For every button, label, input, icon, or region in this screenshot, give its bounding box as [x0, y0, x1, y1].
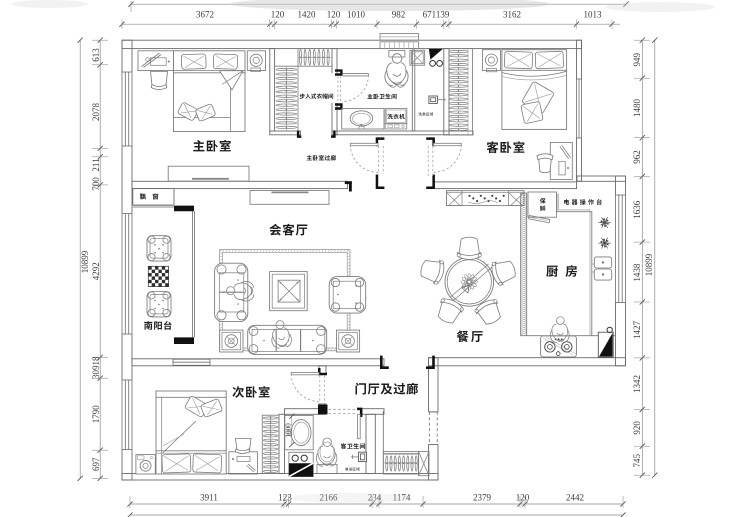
svg-text:1420: 1420 [298, 9, 317, 19]
svg-text:30918: 30918 [91, 356, 101, 379]
svg-text:949: 949 [632, 53, 642, 67]
svg-text:2442: 2442 [566, 492, 584, 502]
svg-text:613: 613 [91, 48, 101, 62]
svg-text:10899: 10899 [644, 253, 654, 276]
svg-text:1000: 1000 [285, 423, 293, 438]
svg-text:700: 700 [91, 177, 101, 191]
svg-text:3672: 3672 [196, 9, 214, 19]
svg-text:671139: 671139 [423, 9, 450, 19]
svg-text:1438: 1438 [632, 263, 642, 282]
svg-text:4292: 4292 [91, 262, 101, 280]
svg-text:120: 120 [327, 9, 341, 19]
svg-text:2379: 2379 [473, 492, 492, 502]
svg-text:2078: 2078 [91, 103, 101, 122]
svg-text:1342: 1342 [632, 375, 642, 393]
svg-text:10899: 10899 [80, 250, 90, 273]
svg-text:3911: 3911 [200, 492, 218, 502]
svg-text:1010: 1010 [347, 9, 366, 19]
svg-text:3162: 3162 [503, 9, 521, 19]
svg-text:211: 211 [91, 158, 101, 171]
svg-text:1427: 1427 [632, 321, 642, 340]
svg-text:920: 920 [632, 421, 642, 435]
svg-text:745: 745 [632, 454, 642, 468]
svg-text:120: 120 [271, 9, 285, 19]
svg-text:1790: 1790 [91, 405, 101, 424]
svg-text:1013: 1013 [584, 9, 603, 19]
svg-text:1480: 1480 [632, 99, 642, 118]
svg-text:962: 962 [632, 150, 642, 164]
svg-text:123: 123 [278, 492, 292, 502]
svg-text:1636: 1636 [632, 200, 642, 219]
svg-text:120: 120 [516, 492, 530, 502]
svg-text:697: 697 [91, 457, 101, 471]
